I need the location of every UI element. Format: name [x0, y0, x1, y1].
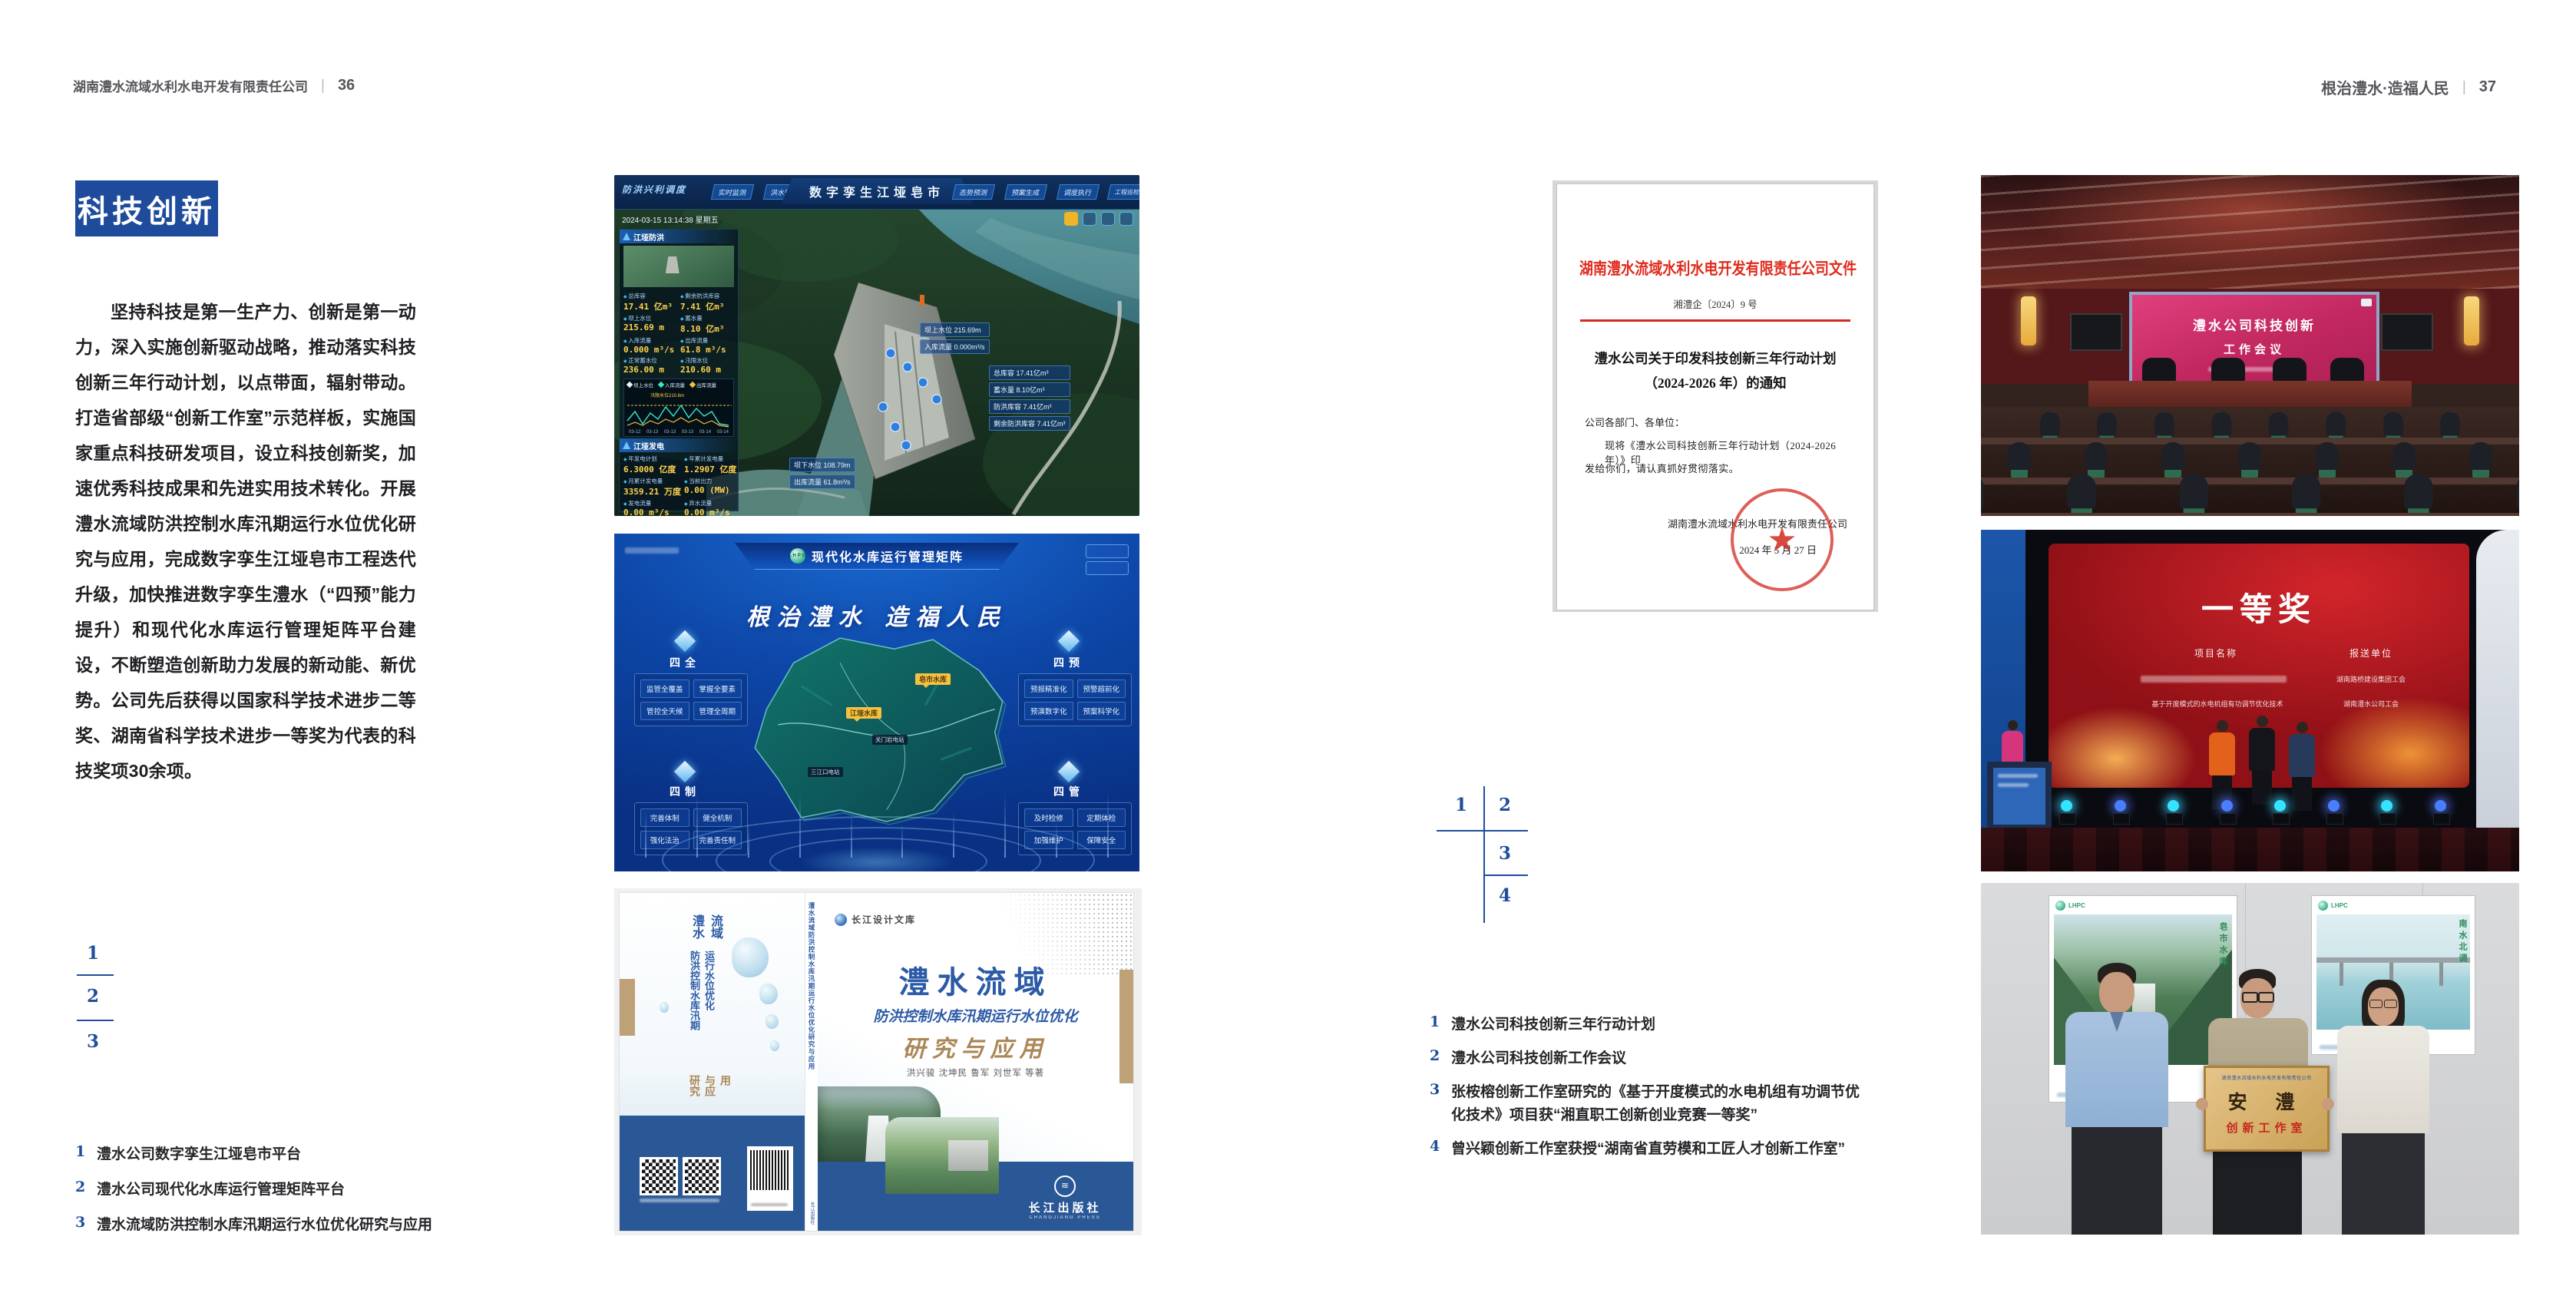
matrix-slogan: 根治澧水 造福人民 — [614, 598, 1139, 632]
light-base — [2326, 813, 2343, 825]
caption-item: 4 曾兴颖创新工作室获授“湖南省直劳模和工匠人才创新工作室” — [1430, 1138, 1864, 1161]
power-stats-grid: 年发电计划6.3000 亿度 年累计发电量1.2907 亿度 月累计发电量335… — [620, 452, 738, 516]
light-glow — [2328, 800, 2340, 812]
trousers — [2342, 1133, 2425, 1235]
light-base — [2220, 813, 2237, 825]
audience-silhouette — [2404, 474, 2433, 508]
matrix-title: 现代化水库运行管理矩阵 — [812, 547, 964, 565]
bridge-pier — [2439, 963, 2443, 986]
stat-label: 发电流量 — [623, 499, 681, 508]
stage-floor — [1981, 828, 2519, 871]
panel-item: 预报精准化 — [1024, 679, 1073, 698]
audience-unit — [2284, 466, 2329, 516]
tab-situation-forecast: 态势预测 — [952, 184, 995, 200]
slogan: 根治澧水·造福人民 — [2321, 76, 2449, 98]
innovation-plaque: 湖南澧水流域水利水电开发有限责任公司 安 澧 创新工作室 — [2204, 1066, 2330, 1152]
white-shirt — [2337, 1026, 2429, 1133]
audience-silhouette — [2180, 474, 2209, 508]
stat-value: 1.2907 亿度 — [684, 463, 736, 475]
speaker-silhouette — [2273, 358, 2306, 382]
index-divider — [77, 1020, 114, 1021]
company-name: 湖南澧水流域水利水电开发有限责任公司 — [73, 76, 308, 95]
figure-number: 1 — [1455, 795, 1467, 815]
tab-plan-generation: 预案生成 — [1004, 184, 1047, 200]
water-level-chart: 坝上水位 入库流量 出库流量 汛限水位210.6m 03-1203-1303-1… — [623, 379, 734, 437]
host-podium — [1987, 762, 2052, 832]
caption-number: 2 — [1430, 1047, 1451, 1070]
panel-item: 管控全天候 — [640, 702, 689, 720]
lhpc-logo-icon: LHPC — [790, 548, 805, 564]
presenter-suit — [2248, 716, 2276, 805]
stat-value: 17.41 亿m³ — [623, 300, 677, 312]
caption-item: 1 澧水公司科技创新三年行动计划 — [1430, 1013, 1864, 1037]
limit-line-note: 汛限水位210.6m — [650, 392, 684, 398]
stat-value: 0.00 m³/s — [684, 508, 736, 516]
stage-light — [2058, 800, 2076, 825]
panel-item: 预演数字化 — [1024, 702, 1073, 720]
plaque-sub-text: 创新工作室 — [2206, 1119, 2327, 1136]
face — [2099, 972, 2135, 1013]
thumb-dam — [666, 256, 680, 273]
glasses-icon — [2258, 992, 2274, 1003]
audience-row — [1981, 466, 2519, 516]
stat-label: 正常蓄水位 — [623, 356, 677, 365]
figure-meeting-photo: 澧水公司科技创新 工作会议 — [1981, 175, 2519, 516]
audience-silhouette — [2326, 412, 2346, 436]
section-title: 科技创新 — [75, 180, 218, 236]
panel-item: 掌握全要素 — [693, 679, 742, 698]
back-blue-band — [620, 1116, 805, 1231]
qr-code — [640, 1157, 678, 1195]
dashboard-corner-label: 防洪兴利调度 — [622, 183, 686, 196]
map-marker-jiangya: 江垭水库 — [846, 707, 881, 719]
light-pillars — [645, 785, 1109, 858]
book-back-cover: 澧水流域 防洪控制水库汛期运行水位优化 研究与应用 — [620, 893, 805, 1231]
audience-silhouette — [2516, 474, 2519, 508]
light-base — [2059, 813, 2076, 825]
speaker-silhouette — [2142, 358, 2176, 382]
figure-book-cover: 澧水流域 防洪控制水库汛期运行水位优化 研究与应用 — [614, 888, 1142, 1235]
document-paper: 湖南澧水流域水利水电开发有限责任公司文件 湘澧企〔2024〕9 号 澧水公司关于… — [1556, 184, 1874, 610]
publisher-logo-icon: ≋ — [1054, 1175, 1076, 1197]
legend-item: 坝上水位 — [627, 381, 653, 388]
awardee-navy — [2288, 722, 2316, 811]
back-title-2: 防洪控制水库汛期运行水位优化 — [687, 951, 733, 1033]
map-marker-zaoshi: 皂市水库 — [915, 673, 951, 685]
stat-value: 3359.21 万度 — [623, 485, 681, 498]
stat-label: 年发电计划 — [623, 455, 681, 463]
stage-light — [2432, 800, 2450, 825]
button-pill — [1086, 544, 1129, 558]
front-photo-hillside — [885, 1117, 999, 1194]
awardee-orange — [2208, 720, 2236, 809]
caption-text: 澧水公司科技创新工作会议 — [1451, 1047, 1626, 1070]
changjiang-logo-icon — [835, 914, 847, 926]
figure-number: 3 — [1499, 843, 1511, 864]
figure-number: 2 — [1499, 795, 1511, 815]
audience-silhouette — [2292, 474, 2321, 508]
callout-downstream: 坝下水位 108.79m 出库流量 61.8m³/s — [789, 458, 855, 491]
legend-item: 入库流量 — [659, 381, 685, 388]
book-title-1: 澧水流域 — [818, 957, 1133, 1002]
callout-upstream: 坝上水位 215.69m 入库流量 0.000m³/s — [920, 322, 990, 356]
audience-unit — [2060, 466, 2105, 516]
callout-row: 总库容 17.41亿m³ — [989, 365, 1070, 380]
stat-label: 出库流量 — [680, 336, 734, 345]
head-table — [2088, 381, 2412, 407]
figure-digital-twin-platform: 防洪兴利调度 实时监测 洪水预报 防洪预警 数字孪生江垭皂市 态势预测 预案生成… — [614, 175, 1139, 516]
light-glow — [2381, 800, 2392, 812]
audience-unit — [2508, 466, 2519, 516]
page-number-left: 36 — [338, 77, 355, 94]
wall-tv — [2070, 313, 2122, 351]
datetime-placeholder — [625, 547, 679, 554]
book-title-3: 研究与应用 — [818, 1030, 1133, 1063]
figure-matrix-platform: LHPC 现代化水库运行管理矩阵 根治澧水 造福人民 四全 监管全覆盖 掌握全要… — [614, 534, 1139, 871]
slide-title-line2: 工作会议 — [2132, 341, 2376, 357]
droplet-icon — [759, 984, 778, 1004]
plaque-header: 湖南澧水流域水利水电开发有限责任公司 — [2206, 1074, 2327, 1081]
publisher-block: ≋ 长江出版社 CHANGJIANG PRESS — [1011, 1175, 1119, 1220]
light-glow — [2115, 800, 2126, 812]
panel-icon — [674, 630, 696, 652]
meeting-ceiling — [1981, 175, 2519, 290]
callout-row: 蓄水量 8.10亿m³ — [989, 382, 1070, 397]
stat-label: 当前出力 — [684, 477, 736, 485]
header-divider: | — [2462, 79, 2466, 96]
stat-value: 215.69 m — [623, 322, 677, 332]
callout-row: 坝上水位 215.69m — [920, 322, 990, 337]
caption-text: 曾兴颖创新工作室获授“湖南省直劳模和工匠人才创新工作室” — [1451, 1138, 1845, 1161]
audience-silhouette — [2098, 412, 2118, 436]
back-title-1: 澧水流域 — [687, 914, 733, 944]
audience-silhouette — [2440, 412, 2460, 436]
panel-item: 监管全覆盖 — [640, 679, 689, 698]
figure-award-photo: 一等奖 项目名称 报送单位 湖南路桥建设集团工会 基于开度模式的水电机组有功调节… — [1981, 530, 2519, 871]
caption-text: 张桉榕创新工作室研究的《基于开度模式的水电机组有功调节优化技术》项目获“湘直职工… — [1451, 1081, 1864, 1127]
header-left: 湖南澧水流域水利水电开发有限责任公司 | 36 — [73, 76, 355, 95]
photo-powerhouse — [948, 1140, 988, 1171]
button-pill — [1086, 561, 1129, 575]
stage-light — [2378, 800, 2396, 825]
stage-light — [2111, 800, 2130, 825]
light-base — [2273, 813, 2290, 825]
wall-tv — [2381, 313, 2433, 351]
audience-silhouette — [2269, 412, 2289, 436]
index-divider — [77, 974, 114, 976]
figure-number: 4 — [1499, 885, 1511, 906]
header-divider: | — [321, 78, 325, 94]
stat-label: 剩余防洪库容 — [680, 292, 734, 300]
wall-lamp — [2464, 296, 2479, 346]
callout-row: 坝下水位 108.79m — [789, 458, 855, 472]
panel-items: 预报精准化 预警超前化 预演数字化 预案科学化 — [1018, 673, 1132, 726]
stage-light — [2218, 800, 2237, 825]
stat-value: 0.00 (MW) — [684, 485, 736, 495]
droplet-icon — [660, 1002, 669, 1013]
glasses-icon — [2384, 1000, 2397, 1008]
audience-silhouette — [2040, 412, 2060, 436]
logo-text: LHPC — [2068, 902, 2085, 909]
audience-unit — [1981, 466, 1992, 516]
speaker-silhouette — [2330, 358, 2364, 382]
alert-icon — [1083, 212, 1096, 226]
stat-value: 0.000 m³/s — [623, 345, 677, 355]
audience-silhouette — [2154, 412, 2174, 436]
index-divider — [1483, 875, 1528, 876]
audience-silhouette — [1981, 474, 1984, 508]
project-row1-placeholder — [2141, 676, 2287, 683]
dashboard-topbar: 防洪兴利调度 实时监测 洪水预报 防洪预警 数字孪生江垭皂市 态势预测 预案生成… — [614, 175, 1139, 210]
trousers — [2072, 1127, 2162, 1235]
poster-right-caption: 南水北调 — [2456, 919, 2469, 965]
light-glow — [2221, 800, 2233, 812]
seal-star-icon: ★ — [1767, 521, 1797, 560]
book-front-cover: 长江设计文库 澧水流域 防洪控制水库汛期运行水位优化 研究与应用 洪兴骏 沈坤民… — [818, 893, 1133, 1231]
audience-silhouette — [2212, 412, 2232, 436]
stat-label: 月累计发电量 — [623, 477, 681, 485]
book-cover-spread: 澧水流域 防洪控制水库汛期运行水位优化 研究与应用 — [620, 893, 1133, 1231]
column-header-org: 报送单位 — [2349, 646, 2392, 660]
stat-label: 年累计发电量 — [684, 455, 736, 463]
slide-logo-icon — [2361, 299, 2372, 306]
caption-number: 1 — [1430, 1013, 1451, 1037]
caption-text: 澧水公司科技创新三年行动计划 — [1451, 1013, 1655, 1037]
document-number: 湘澧企〔2024〕9 号 — [1557, 296, 1873, 311]
official-seal: ★ — [1731, 488, 1834, 591]
figure-plaque-photo: LHPC 皂市水库 LHPC 南水北调 — [1981, 883, 2519, 1235]
droplet-icon — [770, 1040, 779, 1051]
stat-label: 坝上水位 — [623, 314, 677, 322]
award-title: 一等奖 — [2049, 584, 2469, 630]
document-header: 湖南澧水流域水利水电开发有限责任公司文件 — [1579, 256, 1851, 279]
chart-x-ticks: 03-1203-1303-1303-1303-1403-14 — [624, 430, 733, 436]
stage-light — [2164, 800, 2183, 825]
caption-item: 2 澧水公司科技创新工作会议 — [1430, 1047, 1864, 1070]
caption-number: 1 — [75, 1143, 97, 1166]
poster-left-caption: 皂市水库 — [2217, 922, 2229, 968]
index-divider — [1437, 830, 1528, 832]
glasses-icon — [2369, 1000, 2383, 1008]
glasses-icon — [2242, 992, 2258, 1003]
stat-label: 弃水流量 — [684, 499, 736, 508]
org-row1: 湖南路桥建设集团工会 — [2302, 674, 2440, 684]
document-salutation: 公司各部门、各单位： — [1585, 415, 1685, 429]
dashboard-timestamp: 2024-03-15 13:14:38 星期五 — [622, 213, 719, 225]
audience-area — [1981, 407, 2519, 516]
column-header-project: 项目名称 — [2194, 646, 2237, 660]
panel-icon — [1058, 630, 1080, 652]
droplet-icon — [732, 937, 769, 977]
figure-number: 1 — [87, 943, 99, 964]
back-title-3: 研究与应用 — [687, 1075, 733, 1106]
droplet-icon — [766, 1014, 779, 1029]
document-title-line2: （2024-2026 年）的通知 — [1557, 373, 1873, 392]
stat-value: 0.00 m³/s — [623, 508, 681, 516]
tab-dispatch-execution: 调度执行 — [1057, 184, 1100, 200]
project-row2: 基于开度模式的水电机组有功调节优化技术 — [2133, 699, 2302, 709]
user-icon — [1064, 212, 1078, 226]
plaque-big-text: 安 澧 — [2206, 1087, 2327, 1115]
stage-light — [2271, 800, 2290, 825]
caption-item: 1 澧水公司数字孪生江垭皂市平台 — [75, 1143, 436, 1166]
stat-label: 汛限水位 — [680, 356, 734, 365]
light-glow — [2061, 800, 2072, 812]
light-glow — [2168, 800, 2179, 812]
document-red-rule — [1580, 319, 1850, 322]
desk-row — [1981, 513, 2519, 516]
stage-light — [2325, 800, 2343, 825]
barcode — [747, 1146, 793, 1211]
caption-number: 2 — [75, 1179, 97, 1202]
logo-text: LHPC — [2331, 902, 2348, 909]
book-authors: 洪兴骏 沈坤民 鲁军 刘世军 等著 — [818, 1066, 1133, 1079]
stat-value: 61.8 m³/s — [680, 345, 734, 355]
audience-unit — [2172, 466, 2217, 516]
caption-text: 澧水流域防洪控制水库汛期运行水位优化研究与应用 — [97, 1214, 432, 1237]
panel-power-header: 江垭发电 — [620, 438, 738, 452]
series-name: 长江设计文库 — [852, 913, 916, 926]
audience-silhouette — [2068, 474, 2097, 508]
back-title-block: 澧水流域 防洪控制水库汛期运行水位优化 研究与应用 — [687, 914, 733, 1106]
back-tan-bar — [620, 979, 635, 1036]
slide-title-line1: 澧水公司科技创新 — [2132, 315, 2376, 334]
caption-number: 4 — [1430, 1138, 1451, 1161]
panel-flood-header: 江垭防洪 — [620, 230, 738, 243]
lhpc-logo-icon: LHPC — [2055, 901, 2085, 911]
map-marker-guanmenyan: 关门岩电站 — [872, 735, 908, 745]
left-captions: 1 澧水公司数字孪生江垭皂市平台 2 澧水公司现代化水库运行管理矩阵平台 3 澧… — [75, 1143, 436, 1237]
caption-item: 3 张桉榕创新工作室研究的《基于开度模式的水电机组有功调节优化技术》项目获“湘直… — [1430, 1081, 1864, 1127]
caption-number: 3 — [1430, 1081, 1451, 1127]
panel-item: 预案科学化 — [1077, 702, 1126, 720]
publisher-name: 长江出版社 — [1011, 1199, 1119, 1215]
audience-unit — [2396, 466, 2441, 516]
section-body: 坚持科技是第一生产力、创新是第一动力，深入实施创新驱动战略，推动落实科技创新三年… — [75, 294, 416, 789]
brochure-spread: 湖南澧水流域水利水电开发有限责任公司 | 36 根治澧水·造福人民 | 37 科… — [0, 0, 2576, 1306]
speaker-silhouette — [2211, 358, 2245, 382]
matrix-header: LHPC 现代化水库运行管理矩阵 — [735, 543, 1019, 570]
stat-value: 210.60 m — [680, 365, 734, 375]
audience-silhouette — [2383, 412, 2403, 436]
lhpc-logo-icon: LHPC — [2318, 901, 2348, 911]
panel-name: 四预 — [1018, 655, 1119, 670]
caption-item: 2 澧水公司现代化水库运行管理矩阵平台 — [75, 1179, 436, 1202]
caption-item: 3 澧水流域防洪控制水库汛期运行水位优化研究与应用 — [75, 1214, 436, 1237]
figure-number: 2 — [87, 986, 99, 1007]
dashboard-sidebar: 江垭防洪 总库容17.41 亿m³ 剩余防洪库容7.41 亿m³ 坝上水位215… — [619, 229, 739, 511]
index-divider-vertical — [1483, 786, 1485, 923]
stat-label: 蓄水量 — [680, 314, 734, 322]
bridge-pier — [2340, 963, 2343, 986]
message-icon — [1119, 212, 1133, 226]
light-base — [2166, 813, 2183, 825]
document-title-line1: 澧水公司关于印发科技创新三年行动计划 — [1557, 349, 1873, 368]
callout-row: 剩余防洪库容 7.41亿m³ — [989, 416, 1070, 431]
chart-legend: 坝上水位 入库流量 出库流量 — [624, 379, 733, 390]
page-number-right: 37 — [2479, 78, 2496, 96]
tab-realtime-monitor: 实时监测 — [711, 184, 754, 200]
bridge-deck — [2316, 957, 2470, 963]
panel-name: 四全 — [634, 655, 736, 670]
document-body-line2: 发给你们，请认真抓好贯彻落实。 — [1585, 461, 1852, 475]
map-marker-sanjiangkou: 三江口电站 — [808, 767, 843, 777]
podium-sign — [1993, 768, 2045, 825]
qr-caption-placeholder — [640, 1199, 719, 1202]
org-row2: 湖南澧水公司工会 — [2302, 699, 2440, 709]
flood-stats-grid: 总库容17.41 亿m³ 剩余防洪库容7.41 亿m³ 坝上水位215.69 m… — [620, 289, 738, 377]
light-base — [2433, 813, 2450, 825]
stage-right-structure — [2476, 530, 2519, 871]
legend-item: 出库流量 — [690, 381, 716, 388]
stat-label: 总库容 — [623, 292, 677, 300]
caption-text: 澧水公司数字孪生江垭皂市平台 — [97, 1143, 301, 1166]
stat-value: 7.41 亿m³ — [680, 300, 734, 312]
location-icon — [1101, 212, 1115, 226]
light-base — [2113, 813, 2130, 825]
spine-publisher: 长江出版社 — [809, 1202, 815, 1225]
book-title-2: 防洪控制水库汛期运行水位优化 — [818, 1005, 1133, 1026]
panel-icon — [674, 761, 696, 782]
light-glow — [2274, 800, 2286, 812]
light-glow — [2435, 800, 2446, 812]
figure-official-document: 湖南澧水流域水利水电开发有限责任公司文件 湘澧企〔2024〕9 号 澧水公司关于… — [1553, 180, 1878, 612]
camera-thumbnail — [623, 246, 734, 287]
tab-project-inspection: 工程巡检 — [1107, 184, 1139, 200]
caption-text: 澧水公司现代化水库运行管理矩阵平台 — [97, 1179, 345, 1202]
qr-code — [683, 1157, 721, 1195]
wall-lamp — [2021, 296, 2036, 346]
hand — [2322, 1098, 2334, 1110]
header-right: 根治澧水·造福人民 | 37 — [2321, 76, 2496, 98]
callout-row: 出库流量 61.8m³/s — [789, 474, 855, 489]
panel-item: 预警超前化 — [1077, 679, 1126, 698]
right-captions: 1 澧水公司科技创新三年行动计划 2 澧水公司科技创新工作会议 3 张桉榕创新工… — [1430, 1013, 1864, 1161]
callout-reservoir: 总库容 17.41亿m³ 蓄水量 8.10亿m³ 防洪库容 7.41亿m³ 剩余… — [989, 365, 1070, 433]
panel-item: 管理全周期 — [693, 702, 742, 720]
figure-number: 3 — [87, 1031, 99, 1052]
section-title-text: 科技创新 — [78, 187, 216, 231]
stage-lights-row — [2058, 800, 2450, 825]
panel-items: 监管全覆盖 掌握全要素 管控全天候 管理全周期 — [634, 673, 748, 726]
stat-value: 236.00 m — [623, 365, 677, 375]
dashboard-icon-row — [1060, 212, 1133, 230]
stat-value: 6.3000 亿度 — [623, 463, 681, 475]
callout-row: 入库流量 0.000m³/s — [920, 339, 990, 354]
dashboard-title: 数字孪生江垭皂市 — [781, 178, 973, 204]
stat-label: 入库流量 — [623, 336, 677, 345]
publisher-name-en: CHANGJIANG PRESS — [1011, 1215, 1119, 1220]
series-logo-row: 长江设计文库 — [835, 913, 916, 926]
caption-number: 3 — [75, 1214, 97, 1237]
hand — [2196, 1098, 2208, 1110]
light-base — [2379, 813, 2396, 825]
callout-row: 防洪库容 7.41亿m³ — [989, 399, 1070, 414]
spine-title: 澧水流域防洪控制水库汛期运行水位优化研究与应用 — [807, 902, 816, 1070]
stat-value: 8.10 亿m³ — [680, 322, 734, 335]
panel-icon — [1058, 761, 1080, 782]
